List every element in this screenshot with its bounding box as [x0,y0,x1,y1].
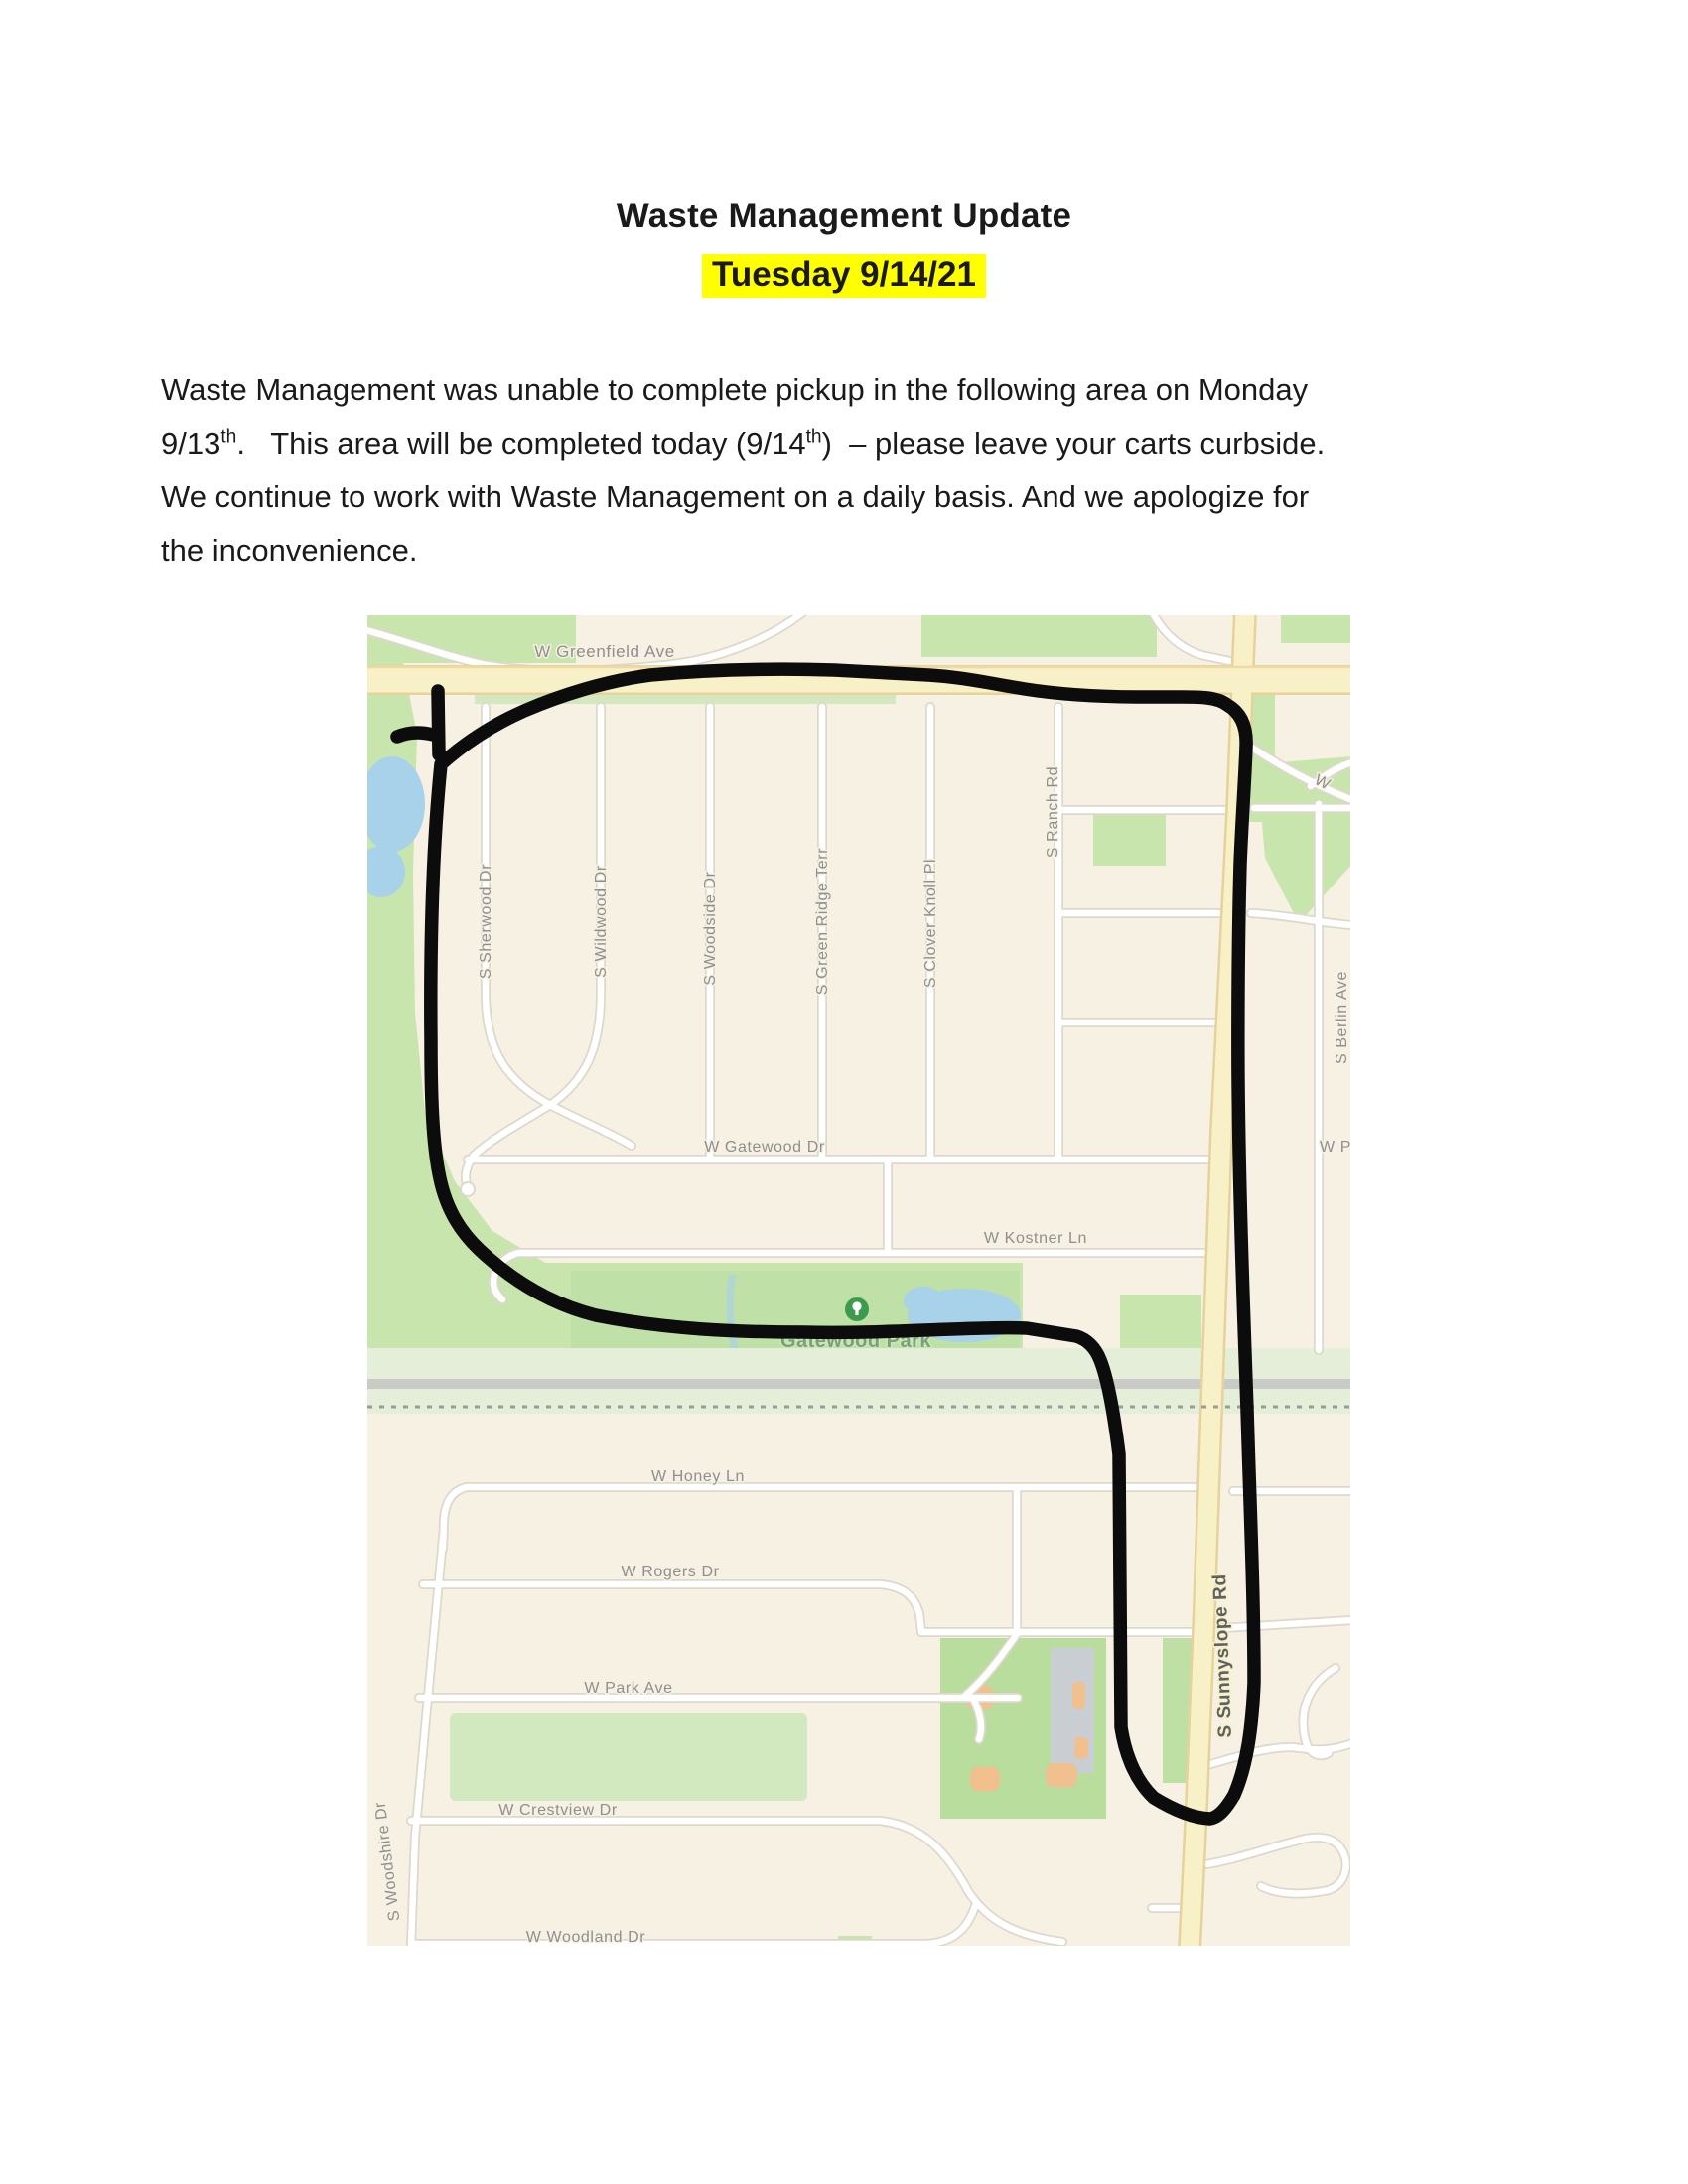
paragraph-line: Waste Management was unable to complete … [161,363,1561,417]
street-label-s-clover-knoll-pl: S Clover Knoll Pl [922,859,939,988]
paragraph-line: 9/13th. This area will be completed toda… [161,417,1561,471]
street-label-w-greenfield-ave: W Greenfield Ave [534,642,675,661]
notice-paragraph: Waste Management was unable to complete … [161,363,1561,578]
street-label-s-berlin-ave: S Berlin Ave [1334,971,1350,1064]
street-label-w-honey-ln: W Honey Ln [651,1468,745,1485]
street-label-w-park-ave: W Park Ave [584,1680,672,1697]
street-label-s-wildwood-dr: S Wildwood Dr [593,865,610,978]
street-label-w-rogers-dr: W Rogers Dr [621,1564,719,1580]
street-label-w-crestview-dr: W Crestview Dr [498,1802,618,1819]
street-label-w-kostner-ln: W Kostner Ln [984,1230,1087,1247]
street-label-s-sherwood-dr: S Sherwood Dr [478,864,494,979]
street-label-s-green-ridge-terr: S Green Ridge Terr [814,848,831,995]
date-highlight: Tuesday 9/14/21 [702,254,986,298]
page-title: Waste Management Update [0,197,1688,236]
paragraph-line: We continue to work with Waste Managemen… [161,471,1561,524]
cul-de-sac [461,1182,475,1196]
street-label-w-woodland-dr: W Woodland Dr [526,1929,646,1946]
paragraph-line: the inconvenience. [161,524,1561,578]
street-label-partial-w-p: W P [1320,1139,1350,1156]
street-label-w-gatewood-dr: W Gatewood Dr [704,1139,825,1156]
pickup-area-map: W Greenfield Ave S Sherwood Dr S Wildwoo… [367,615,1350,1946]
map-image: W Greenfield Ave S Sherwood Dr S Wildwoo… [367,615,1350,1946]
street-label-s-woodside-dr: S Woodside Dr [702,871,719,985]
subtitle-row: Tuesday 9/14/21 [0,254,1688,298]
document-page: Waste Management Update Tuesday 9/14/21 … [0,0,1688,2184]
street-label-s-ranch-rd: S Ranch Rd [1045,766,1061,858]
park-icon [845,1297,869,1321]
